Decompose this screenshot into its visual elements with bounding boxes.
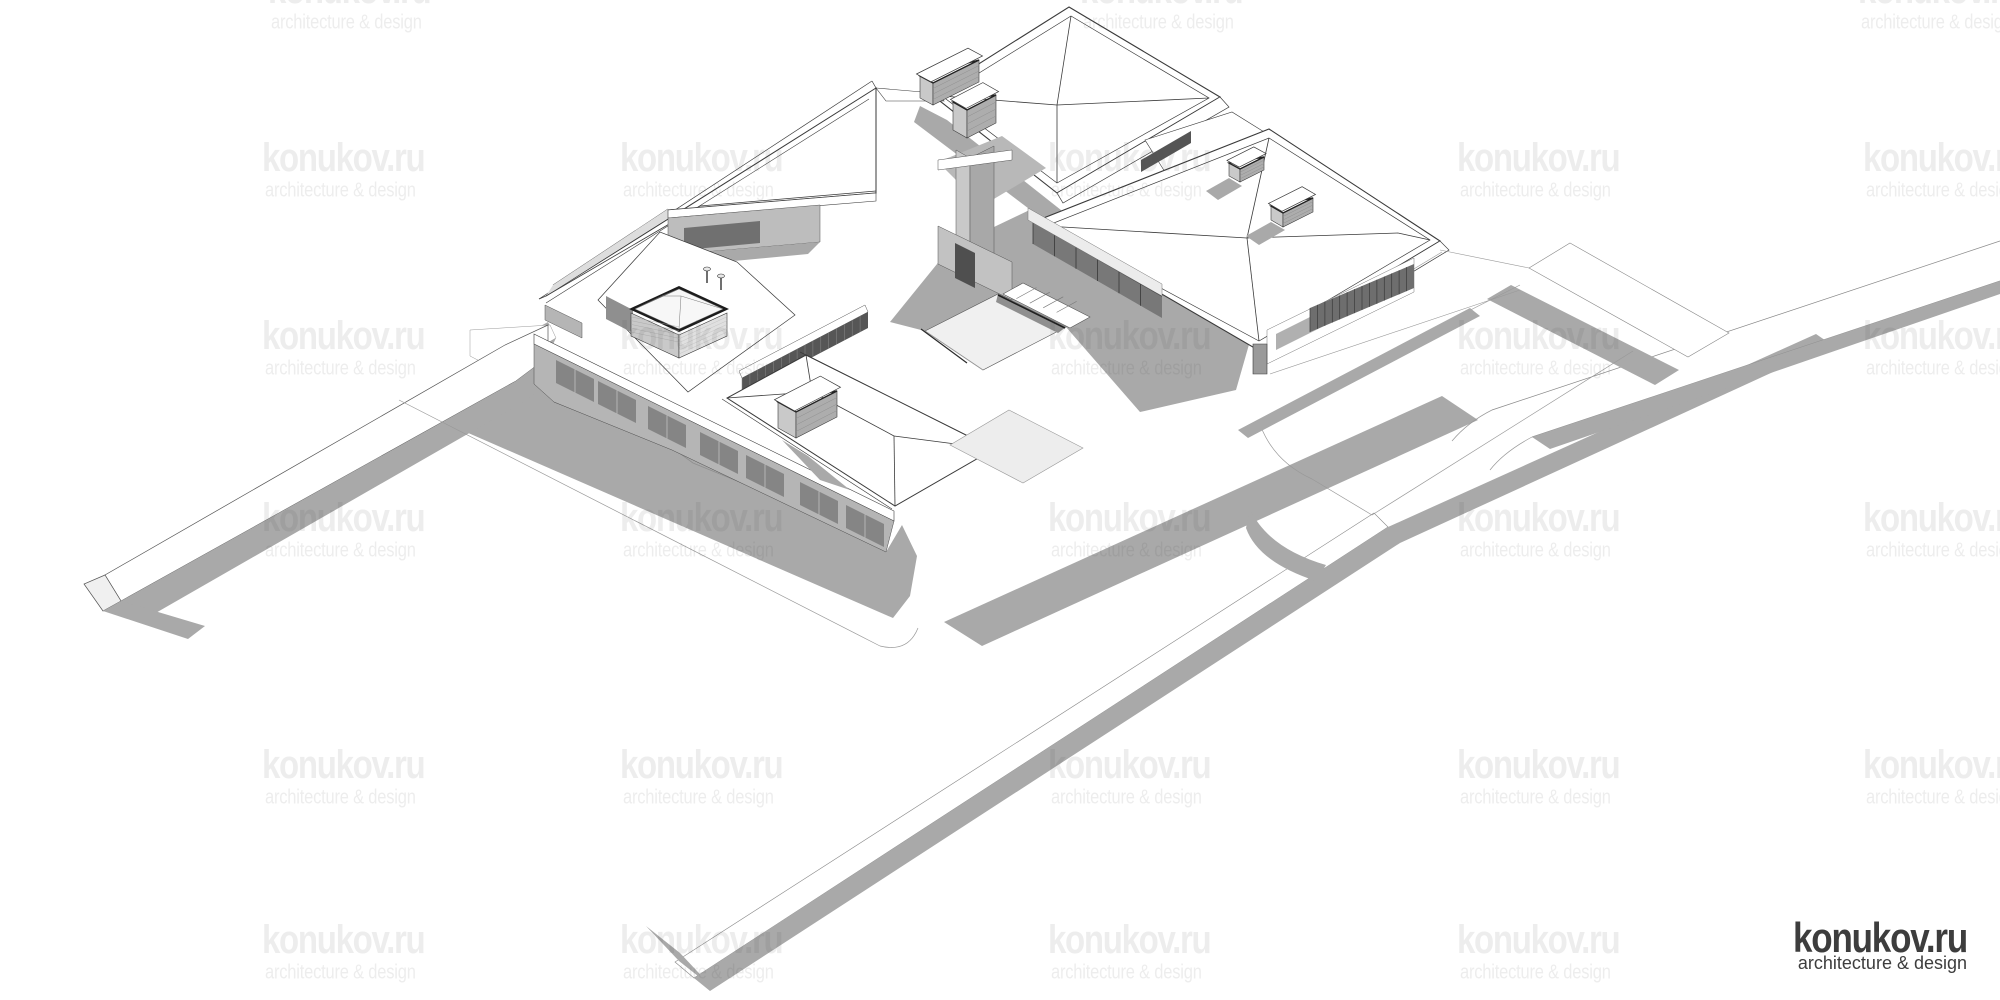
svg-text:architecture & design: architecture & design [1460,785,1611,808]
svg-text:konukov.ru: konukov.ru [620,313,782,358]
svg-text:konukov.ru: konukov.ru [1863,742,2000,787]
svg-text:konukov.ru: konukov.ru [262,742,424,787]
svg-text:konukov.ru: konukov.ru [1863,495,2000,540]
svg-text:konukov.ru: konukov.ru [262,917,424,962]
svg-text:konukov.ru: konukov.ru [262,495,424,540]
svg-text:konukov.ru: konukov.ru [620,917,782,962]
svg-text:architecture & design: architecture & design [1866,785,2000,808]
svg-text:konukov.ru: konukov.ru [262,135,424,180]
svg-text:konukov.ru: konukov.ru [620,495,782,540]
svg-text:architecture & design: architecture & design [265,538,416,561]
svg-text:architecture & design: architecture & design [1051,538,1202,561]
svg-text:architecture & design: architecture & design [271,10,422,33]
svg-text:architecture & design: architecture & design [1866,538,2000,561]
svg-text:konukov.ru: konukov.ru [1048,135,1210,180]
svg-text:konukov.ru: konukov.ru [1457,742,1619,787]
svg-text:architecture & design: architecture & design [1051,960,1202,983]
svg-text:konukov.ru: konukov.ru [1457,917,1619,962]
svg-text:architecture & design: architecture & design [623,538,774,561]
svg-text:konukov.ru: konukov.ru [620,742,782,787]
svg-text:architecture & design: architecture & design [1460,356,1611,379]
svg-text:architecture & design: architecture & design [1866,178,2000,201]
svg-text:architecture & design: architecture & design [1051,785,1202,808]
svg-text:architecture & design: architecture & design [623,356,774,379]
svg-text:architecture & design: architecture & design [623,960,774,983]
svg-text:konukov.ru: konukov.ru [1457,135,1619,180]
svg-text:architecture & design: architecture & design [1051,178,1202,201]
svg-text:architecture & design: architecture & design [623,785,774,808]
svg-text:architecture & design: architecture & design [265,785,416,808]
svg-text:architecture & design: architecture & design [1051,356,1202,379]
svg-text:konukov.ru: konukov.ru [1048,742,1210,787]
svg-text:architecture & design: architecture & design [265,356,416,379]
svg-text:architecture & design: architecture & design [1460,960,1611,983]
svg-text:konukov.ru: konukov.ru [1457,313,1619,358]
svg-text:konukov.ru: konukov.ru [262,313,424,358]
svg-text:architecture & design: architecture & design [1083,10,1234,33]
svg-text:architecture & design: architecture & design [1460,178,1611,201]
svg-text:architecture & design: architecture & design [623,178,774,201]
svg-text:architecture & design: architecture & design [1861,10,2000,33]
svg-text:architecture & design: architecture & design [1460,538,1611,561]
svg-text:architecture & design: architecture & design [1866,356,2000,379]
svg-text:konukov.ru: konukov.ru [1048,917,1210,962]
svg-text:konukov.ru: konukov.ru [1863,135,2000,180]
svg-text:architecture & design: architecture & design [265,178,416,201]
svg-text:konukov.ru: konukov.ru [1457,495,1619,540]
svg-text:architecture & design: architecture & design [1798,953,1967,973]
svg-text:konukov.ru: konukov.ru [1048,495,1210,540]
svg-text:konukov.ru: konukov.ru [1863,313,2000,358]
svg-text:architecture & design: architecture & design [265,960,416,983]
svg-text:konukov.ru: konukov.ru [1048,313,1210,358]
svg-text:konukov.ru: konukov.ru [620,135,782,180]
